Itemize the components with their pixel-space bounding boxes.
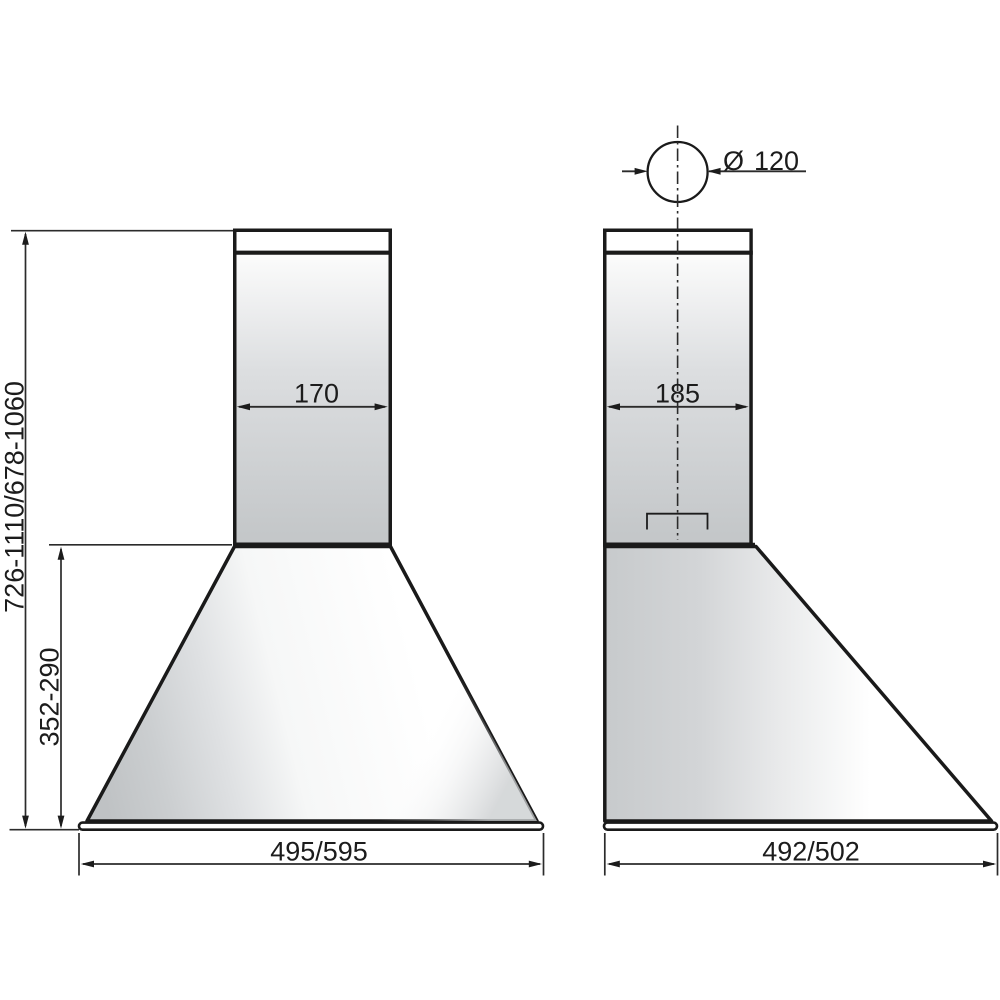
svg-text:495/595: 495/595 — [270, 837, 368, 867]
svg-text:352-290: 352-290 — [35, 647, 65, 746]
svg-text:492/502: 492/502 — [762, 837, 860, 867]
svg-text:726-1110/678-1060: 726-1110/678-1060 — [0, 381, 30, 613]
svg-text:120: 120 — [754, 146, 799, 176]
svg-text:185: 185 — [655, 379, 700, 409]
svg-text:170: 170 — [294, 379, 339, 409]
svg-text:Ø: Ø — [723, 146, 744, 176]
